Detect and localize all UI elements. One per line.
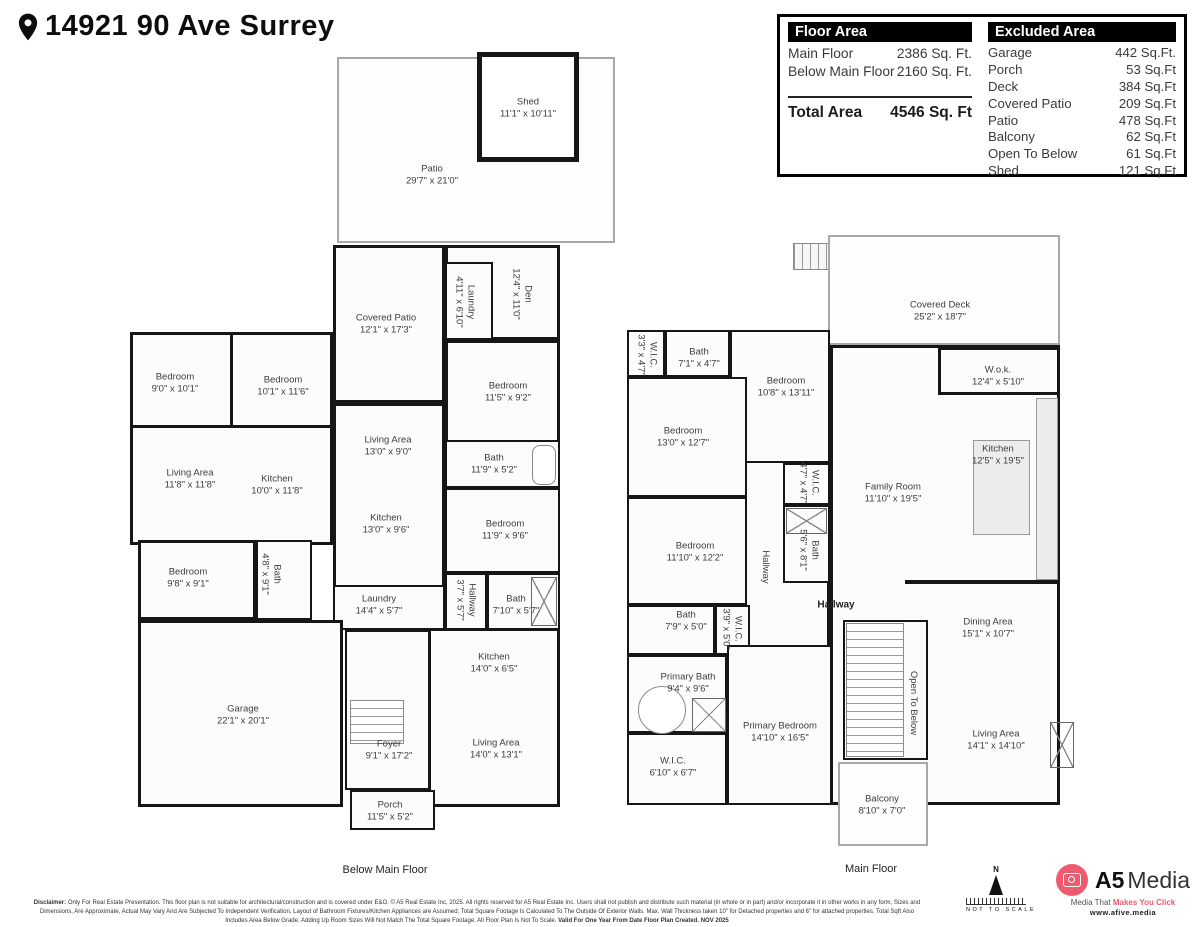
compass-arrow-icon	[989, 875, 1003, 895]
row-value: 384 Sq.Ft	[1119, 79, 1176, 96]
fireplace	[1050, 722, 1074, 768]
room-label: Covered Patio12'1" x 17'3"	[356, 313, 416, 338]
room-label: Bedroom10'8" x 13'11"	[758, 376, 815, 401]
row-value: 4546 Sq. Ft	[890, 103, 972, 123]
table-row: Main Floor2386 Sq. Ft.	[788, 45, 972, 63]
row-label: Porch	[988, 62, 1022, 79]
main-floor-caption: Main Floor	[845, 863, 897, 875]
wall-segment	[905, 580, 1060, 584]
room-label: Garage22'1" x 20'1"	[217, 704, 269, 729]
a5-media-logo: A5Media Media That Makes You Click www.a…	[1052, 864, 1194, 917]
table-row: Balcony62 Sq.Ft	[988, 129, 1176, 146]
room-label: Hallway3'7" x 5'7"	[453, 579, 478, 621]
logo-row: A5Media	[1052, 864, 1194, 896]
row-label: Balcony	[988, 129, 1035, 146]
room-label: Bath7'1" x 4'7"	[678, 347, 720, 372]
row-label: Below Main Floor	[788, 63, 895, 81]
wall-segment	[130, 425, 333, 428]
disclaimer-line2-bold: Valid For One Year From Date Floor Plan …	[558, 918, 729, 924]
row-label: Deck	[988, 79, 1018, 96]
compass: N NOT TO SCALE	[966, 866, 1026, 913]
brand-tagline: Media That Makes You Click	[1052, 898, 1194, 907]
excluded-area-table: Excluded Area Garage442 Sq.Ft. Porch53 S…	[980, 17, 1184, 174]
room-label: Kitchen13'0" x 9'6"	[363, 513, 410, 538]
wall-segment	[230, 332, 233, 428]
room-label: Family Room11'10" x 19'5"	[865, 482, 922, 507]
row-value: 209 Sq.Ft	[1119, 96, 1176, 113]
bathtub	[532, 445, 556, 485]
room-label: Bedroom11'10" x 12'2"	[667, 541, 724, 566]
room-label: Laundry4'11" x 6'10"	[452, 276, 477, 327]
room-label: Hallway	[817, 599, 854, 612]
tagline-accent: Makes You Click	[1113, 898, 1175, 907]
row-label: Total Area	[788, 103, 862, 123]
room-label: Balcony8'10" x 7'0"	[859, 794, 906, 819]
row-value: 61 Sq.Ft	[1126, 146, 1176, 163]
row-value: 478 Sq.Ft	[1119, 113, 1176, 130]
room-label: Covered Deck25'2" x 18'7"	[910, 300, 970, 325]
staircase	[350, 700, 404, 744]
room-label: Foyer9'1" x 17'2"	[366, 739, 413, 764]
room-label: Bath7'9" x 5'0"	[665, 610, 707, 635]
floor-area-table: Floor Area Main Floor2386 Sq. Ft. Below …	[780, 17, 980, 174]
total-area-row: Total Area4546 Sq. Ft	[788, 96, 972, 123]
row-value: 442 Sq.Ft.	[1115, 45, 1176, 62]
table-row: Patio478 Sq.Ft	[988, 113, 1176, 130]
row-label: Main Floor	[788, 45, 853, 63]
tagline-prefix: Media That	[1071, 898, 1113, 907]
disclaimer-label: Disclaimer:	[34, 900, 66, 906]
room-label: Bath7'10" x 5'7"	[493, 594, 540, 619]
row-value: 53 Sq.Ft	[1126, 62, 1176, 79]
row-label: Shed	[988, 163, 1019, 180]
camera-glyph	[1063, 873, 1081, 887]
scale-ruler-icon	[966, 898, 1026, 905]
not-to-scale-label: NOT TO SCALE	[966, 907, 1026, 913]
room-label: Bedroom9'0" x 10'1"	[152, 372, 199, 397]
shower	[692, 698, 726, 732]
row-label: Patio	[988, 113, 1018, 130]
room-label: Bedroom10'1" x 11'6"	[257, 375, 308, 400]
room-label: Porch11'5" x 5'2"	[367, 800, 413, 825]
table-row: Covered Patio209 Sq.Ft	[988, 96, 1176, 113]
brand-bold: A5	[1095, 867, 1124, 893]
table-row: Open To Below61 Sq.Ft	[988, 146, 1176, 163]
brand-light: Media	[1127, 867, 1190, 893]
page-header: 14921 90 Ave Surrey	[18, 10, 335, 43]
row-value: 2160 Sq. Ft.	[897, 63, 972, 81]
below-main-floor-caption: Below Main Floor	[343, 864, 428, 876]
row-label: Open To Below	[988, 146, 1077, 163]
row-value: 121 Sq.Ft	[1119, 163, 1176, 180]
room-label: Living Area11'8" x 11'8"	[165, 468, 216, 493]
row-label: Covered Patio	[988, 96, 1072, 113]
disclaimer-text: Disclaimer: Only For Real Estate Present…	[28, 899, 926, 926]
room-label: Kitchen12'5" x 19'5"	[972, 444, 1024, 469]
room-label: Shed11'1" x 10'11"	[500, 97, 556, 122]
row-value: 62 Sq.Ft	[1126, 129, 1176, 146]
room-label: Living Area14'1" x 14'10"	[967, 729, 1024, 754]
location-pin-icon	[18, 13, 38, 41]
row-label: Garage	[988, 45, 1032, 62]
table-row: Porch53 Sq.Ft	[988, 62, 1176, 79]
excluded-area-table-header: Excluded Area	[988, 22, 1176, 42]
room-label: Bedroom9'8" x 9'1"	[167, 567, 209, 592]
camera-icon	[1056, 864, 1088, 896]
brand-name: A5Media	[1095, 867, 1190, 894]
compass-north-label: N	[966, 866, 1026, 874]
room-label: Bedroom11'9" x 9'6"	[482, 519, 528, 544]
table-row: Below Main Floor2160 Sq. Ft.	[788, 63, 972, 81]
room-label: W.I.C.4'7" x 4'7"	[796, 462, 821, 504]
room-label: Open To Below	[907, 671, 919, 735]
room-label: Laundry14'4" x 5'7"	[356, 594, 403, 619]
room-label: Bedroom11'5" x 9'2"	[485, 381, 531, 406]
staircase	[846, 623, 904, 757]
covered-deck-outline	[828, 235, 1060, 345]
table-row: Garage442 Sq.Ft.	[988, 45, 1176, 62]
kitchen-counter	[1036, 398, 1058, 580]
room-label: W.o.k.12'4" x 5'10"	[972, 365, 1024, 390]
room-label: Kitchen10'0" x 11'8"	[251, 474, 302, 499]
room-label: W.I.C.6'10" x 6'7"	[650, 756, 697, 781]
room-label: Bath4'8" x 9'1"	[258, 553, 283, 595]
room-label: Den12'4" x 11'0"	[509, 268, 534, 319]
room-label: Patio29'7" x 21'0"	[406, 164, 458, 189]
table-row: Deck384 Sq.Ft	[988, 79, 1176, 96]
table-row: Shed121 Sq.Ft	[988, 163, 1176, 180]
room-label: W.I.C.3'3" x 4'7"	[634, 334, 659, 376]
room-label: Primary Bath9'4" x 9'6"	[661, 672, 716, 697]
room-label: Hallway	[759, 550, 771, 583]
row-value: 2386 Sq. Ft.	[897, 45, 972, 63]
room-label: Dining Area15'1" x 10'7"	[962, 617, 1014, 642]
room-label: Living Area13'0" x 9'0"	[364, 435, 411, 460]
floor-area-table-header: Floor Area	[788, 22, 972, 42]
room-label: Living Area14'0" x 13'1"	[470, 738, 522, 763]
room-label: W.I.C.3'9" x 5'0"	[719, 608, 744, 650]
brand-website: www.afive.media	[1052, 908, 1194, 917]
room-label: Bath11'9" x 5'2"	[471, 453, 517, 478]
room-label: Bath5'6" x 8'1"	[796, 529, 821, 571]
room-label: Primary Bedroom14'10" x 16'5"	[743, 721, 817, 746]
room-label: Kitchen14'0" x 6'5"	[471, 652, 518, 677]
room-label: Bedroom13'0" x 12'7"	[657, 426, 709, 451]
page-title: 14921 90 Ave Surrey	[45, 10, 335, 43]
area-tables-box: Floor Area Main Floor2386 Sq. Ft. Below …	[777, 14, 1187, 177]
